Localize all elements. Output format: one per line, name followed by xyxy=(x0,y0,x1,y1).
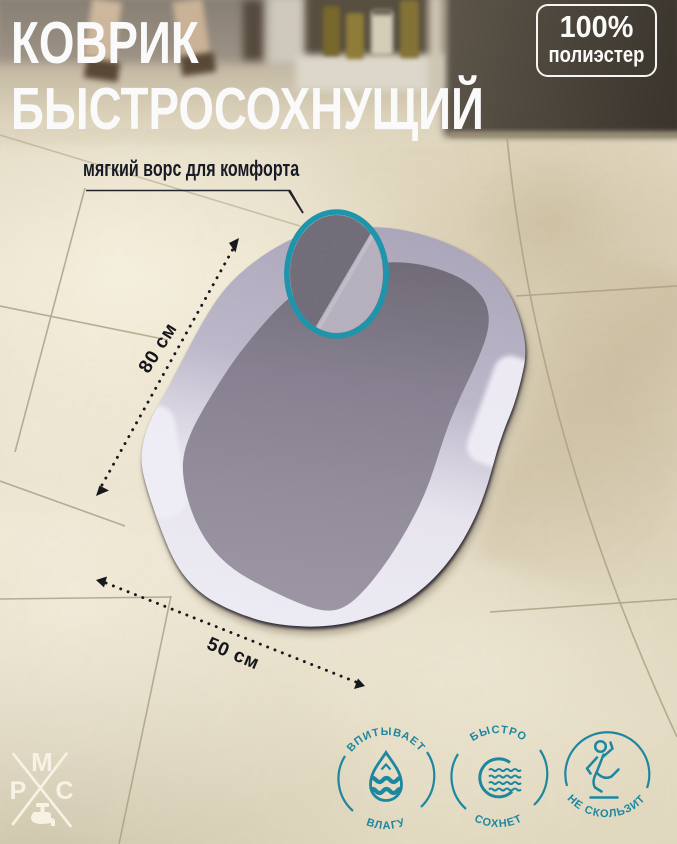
svg-text:Р: Р xyxy=(10,777,27,805)
svg-text:М: М xyxy=(31,747,53,777)
svg-text:С: С xyxy=(55,777,73,805)
